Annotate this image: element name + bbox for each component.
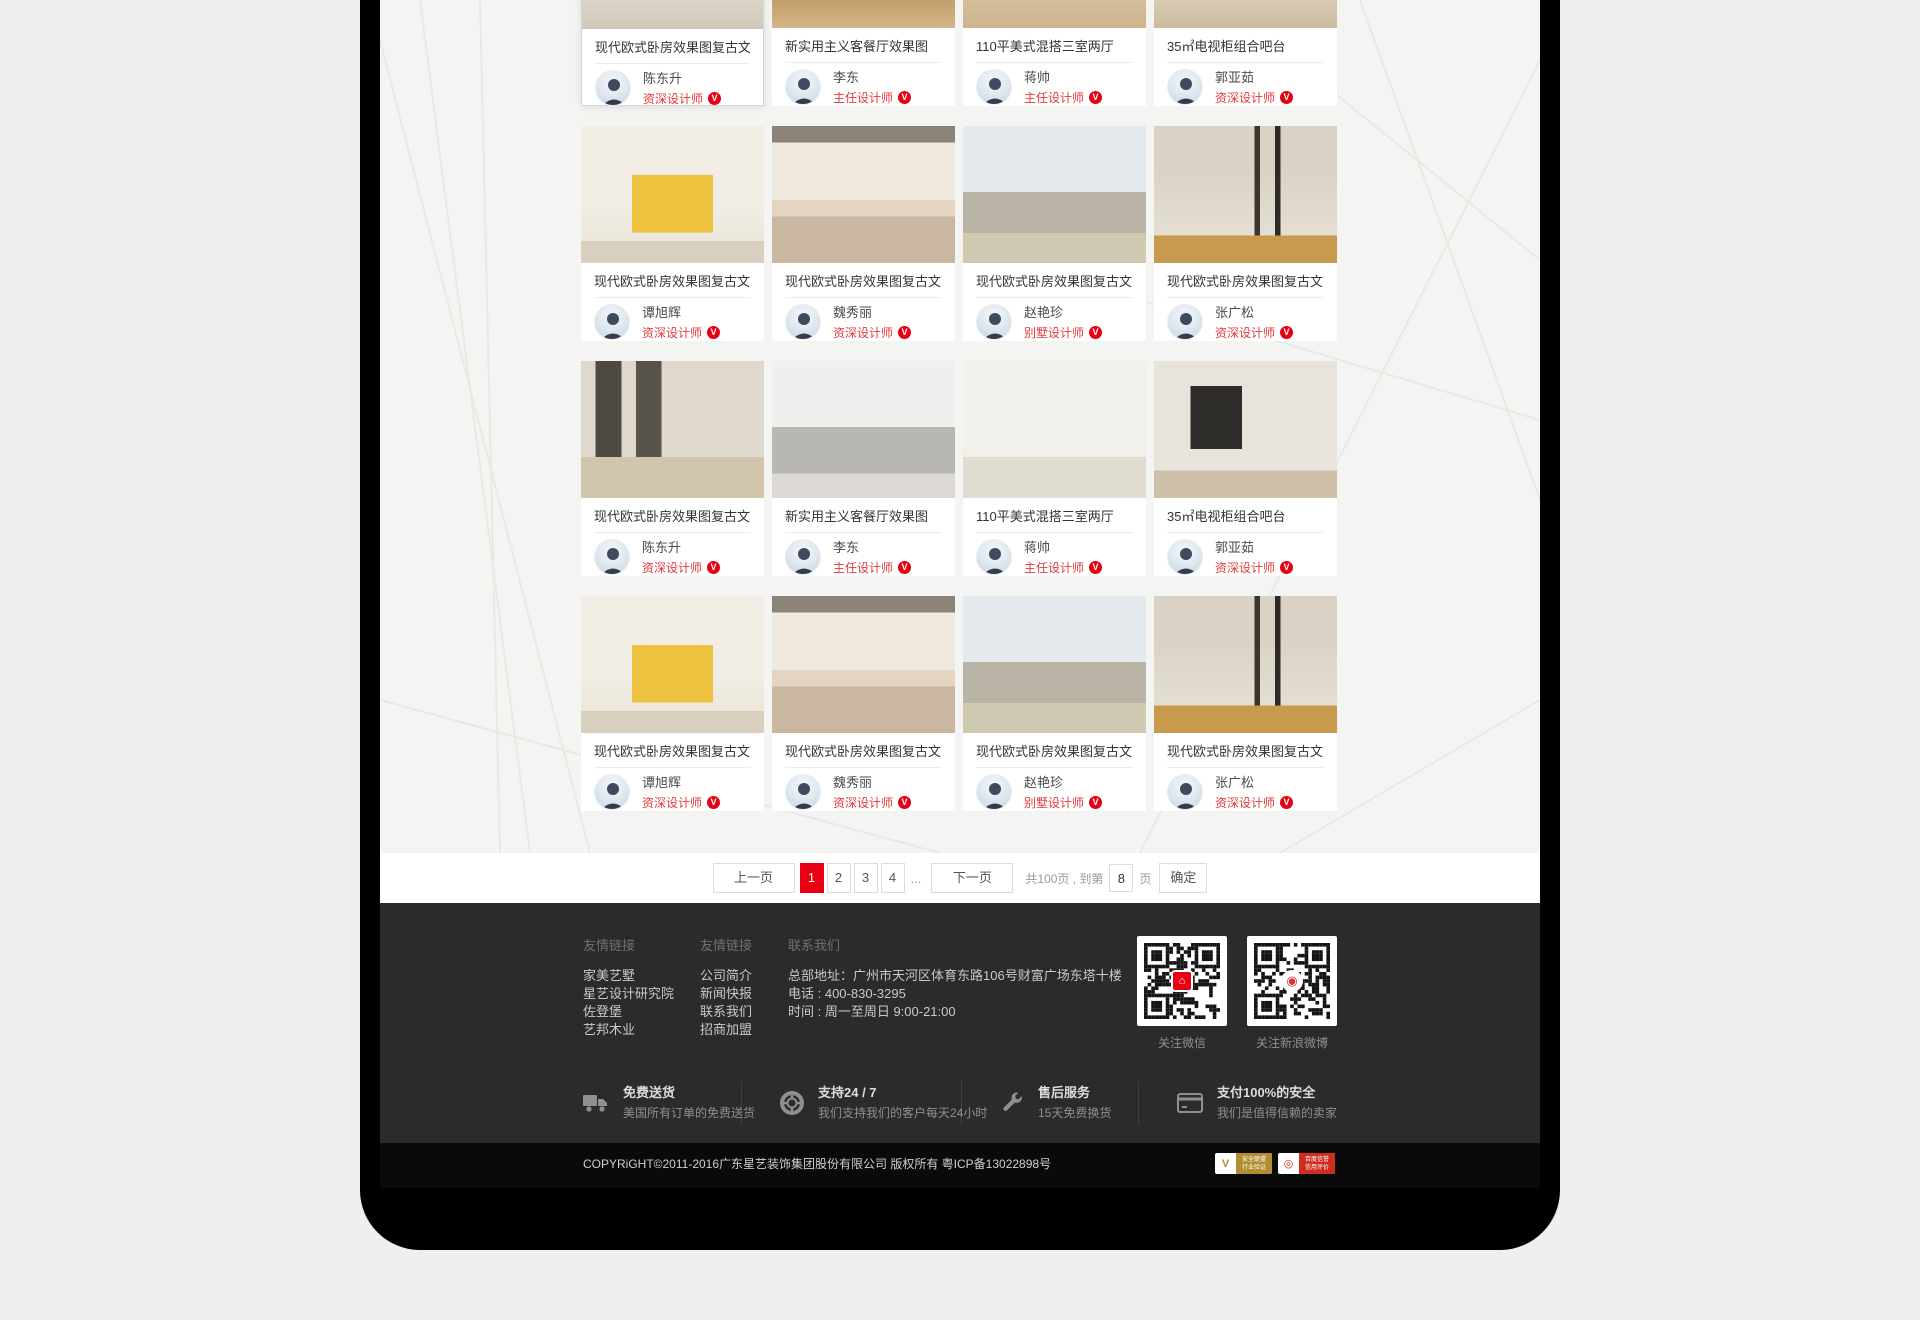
designer-name[interactable]: 赵艳珍	[1024, 775, 1102, 791]
truck-icon	[583, 1092, 609, 1114]
service-subtitle: 我们是值得信赖的卖家	[1217, 1106, 1337, 1121]
weibo-logo-icon: ◉	[1281, 970, 1303, 992]
footer-link[interactable]: 公司简介	[700, 967, 788, 985]
design-photo[interactable]	[772, 126, 955, 263]
designer-avatar[interactable]	[976, 304, 1012, 340]
design-card[interactable]: 现代欧式卧房效果图复古文艺 陈东升 资深设计师 V	[581, 0, 764, 106]
designer-row: 蒋帅 主任设计师 V	[976, 539, 1133, 575]
design-title[interactable]: 110平美式混搭三室两厅	[976, 502, 1133, 533]
footer-links-group-1: 友情链接 家美艺墅 星艺设计研究院 佐登堡 艺邦木业	[583, 935, 700, 1039]
designer-rank: 资深设计师	[642, 796, 702, 810]
designer-row: 赵艳珍 别墅设计师 V	[976, 774, 1133, 810]
designer-avatar[interactable]	[785, 304, 821, 340]
design-title[interactable]: 现代欧式卧房效果图复古文艺	[976, 267, 1133, 298]
service-subtitle: 美国所有订单的免费送货	[623, 1106, 755, 1121]
designer-avatar[interactable]	[1167, 304, 1203, 340]
page-content: 现代欧式卧房效果图复古文艺 陈东升 资深设计师 V 新实用主义客餐厅效果图	[380, 0, 1540, 1188]
verified-badge-icon: V	[898, 91, 911, 104]
verified-badge-icon: V	[1280, 561, 1293, 574]
design-title[interactable]: 35㎡电视柜组合吧台	[1167, 502, 1324, 533]
designer-row: 谭旭辉 资深设计师 V	[594, 774, 751, 810]
verified-badge-icon: V	[707, 326, 720, 339]
verified-badge-icon: V	[708, 92, 721, 105]
design-card[interactable]: 现代欧式卧房效果图复古文艺 谭旭辉 资深设计师 V	[581, 596, 764, 811]
designer-avatar[interactable]	[785, 774, 821, 810]
security-alliance-badge[interactable]: V 安全联盟 行业验证	[1215, 1153, 1272, 1174]
page-button-4[interactable]: 4	[881, 863, 905, 893]
checkmark-seal-icon: V	[1215, 1153, 1236, 1174]
service-title: 售后服务	[1038, 1085, 1111, 1101]
footer-group-heading: 友情链接	[583, 935, 700, 954]
credit-card-icon	[1177, 1093, 1203, 1113]
designer-rank: 资深设计师	[1215, 326, 1275, 340]
design-photo[interactable]	[963, 0, 1146, 28]
design-photo[interactable]	[1154, 0, 1337, 28]
design-title[interactable]: 现代欧式卧房效果图复古文艺	[1167, 737, 1324, 768]
copyright-bar: COPYRiGHT©2011-2016广东星艺装饰集团股份有限公司 版权所有 粤…	[380, 1143, 1540, 1188]
footer-links-group-2: 友情链接 公司简介 新闻快报 联系我们 招商加盟	[700, 935, 788, 1039]
design-photo[interactable]	[772, 361, 955, 498]
designer-name[interactable]: 赵艳珍	[1024, 305, 1102, 321]
design-photo[interactable]	[581, 596, 764, 733]
designer-avatar[interactable]	[1167, 539, 1203, 575]
designer-avatar[interactable]	[594, 774, 630, 810]
verified-badge-icon: V	[898, 326, 911, 339]
weibo-qr-code: ◉	[1247, 936, 1337, 1026]
design-card[interactable]: 新实用主义客餐厅效果图 李东 主任设计师 V	[772, 0, 955, 106]
designer-row: 郭亚茹 资深设计师 V	[1167, 539, 1324, 575]
design-card[interactable]: 现代欧式卧房效果图复古文艺 张广松 资深设计师 V	[1154, 126, 1337, 341]
next-page-button[interactable]: 下一页	[931, 863, 1013, 893]
verified-badge-icon: V	[1280, 91, 1293, 104]
designer-rank: 主任设计师	[833, 91, 893, 105]
design-photo[interactable]	[582, 0, 763, 29]
design-title[interactable]: 110平美式混搭三室两厅	[976, 32, 1133, 63]
designer-name[interactable]: 魏秀丽	[833, 775, 911, 791]
designer-name[interactable]: 谭旭辉	[642, 305, 720, 321]
service-free-shipping: 免费送货 美国所有订单的免费送货	[583, 1085, 741, 1121]
designer-avatar[interactable]	[976, 774, 1012, 810]
designer-row: 陈东升 资深设计师 V	[594, 539, 751, 575]
baidu-credit-badge[interactable]: ◎ 百度信誉 信用评价	[1278, 1153, 1335, 1174]
service-secure-payment: 支付100%的安全 我们是值得信赖的卖家	[1139, 1085, 1337, 1121]
designer-row: 郭亚茹 资深设计师 V	[1167, 69, 1324, 105]
designer-avatar[interactable]	[594, 539, 630, 575]
verified-badge-icon: V	[898, 561, 911, 574]
design-card[interactable]: 现代欧式卧房效果图复古文艺 谭旭辉 资深设计师 V	[581, 126, 764, 341]
design-card[interactable]: 35㎡电视柜组合吧台 郭亚茹 资深设计师 V	[1154, 361, 1337, 576]
verified-badge-icon: V	[1089, 796, 1102, 809]
service-after-sales: 售后服务 15天免费换货	[962, 1085, 1138, 1121]
qr-code-block: ⌂ 关注微信 ◉ 关注新浪微博	[1137, 936, 1337, 1051]
wechat-qr-code: ⌂	[1137, 936, 1227, 1026]
design-card[interactable]: 现代欧式卧房效果图复古文艺 张广松 资深设计师 V	[1154, 596, 1337, 811]
designer-row: 魏秀丽 资深设计师 V	[785, 774, 942, 810]
design-title[interactable]: 新实用主义客餐厅效果图	[785, 502, 942, 533]
wechat-logo-icon: ⌂	[1171, 970, 1193, 992]
design-title[interactable]: 现代欧式卧房效果图复古文艺	[594, 502, 751, 533]
designer-name[interactable]: 张广松	[1215, 305, 1293, 321]
page-button-3[interactable]: 3	[854, 863, 878, 893]
design-title[interactable]: 现代欧式卧房效果图复古文艺	[785, 267, 942, 298]
verified-badge-icon: V	[707, 561, 720, 574]
footer-link[interactable]: 家美艺墅	[583, 967, 700, 985]
design-title[interactable]: 现代欧式卧房效果图复古文艺	[785, 737, 942, 768]
designer-rank: 主任设计师	[1024, 91, 1084, 105]
designer-rank: 主任设计师	[1024, 561, 1084, 575]
service-features-row: 免费送货 美国所有订单的免费送货	[583, 1075, 1337, 1131]
design-card[interactable]: 110平美式混搭三室两厅 蒋帅 主任设计师 V	[963, 0, 1146, 106]
designer-row: 魏秀丽 资深设计师 V	[785, 304, 942, 340]
service-title: 支付100%的安全	[1217, 1085, 1337, 1101]
lifebuoy-icon	[780, 1091, 804, 1115]
design-photo[interactable]	[581, 361, 764, 498]
footer-link[interactable]: 招商加盟	[700, 1021, 788, 1039]
design-card[interactable]: 现代欧式卧房效果图复古文艺 赵艳珍 别墅设计师 V	[963, 126, 1146, 341]
designer-row: 陈东升 资深设计师 V	[595, 70, 750, 106]
design-title[interactable]: 现代欧式卧房效果图复古文艺	[594, 267, 751, 298]
design-title[interactable]: 现代欧式卧房效果图复古文艺	[976, 737, 1133, 768]
designer-row: 赵艳珍 别墅设计师 V	[976, 304, 1133, 340]
designer-name[interactable]: 李东	[833, 70, 911, 86]
design-photo[interactable]	[1154, 596, 1337, 733]
design-photo[interactable]	[1154, 361, 1337, 498]
designer-avatar[interactable]	[976, 69, 1012, 105]
design-photo[interactable]	[963, 126, 1146, 263]
designer-row: 蒋帅 主任设计师 V	[976, 69, 1133, 105]
designer-row: 谭旭辉 资深设计师 V	[594, 304, 751, 340]
designer-rank: 资深设计师	[642, 561, 702, 575]
verified-badge-icon: V	[1089, 91, 1102, 104]
design-photo[interactable]	[963, 361, 1146, 498]
designer-avatar[interactable]	[785, 69, 821, 105]
design-title[interactable]: 新实用主义客餐厅效果图	[785, 32, 942, 63]
jump-confirm-button[interactable]: 确定	[1159, 863, 1207, 893]
verified-badge-icon: V	[1280, 796, 1293, 809]
qr-label: 关注微信	[1137, 1034, 1227, 1051]
design-title[interactable]: 现代欧式卧房效果图复古文艺	[1167, 267, 1324, 298]
designer-name[interactable]: 郭亚茹	[1215, 540, 1293, 556]
design-card-grid: 现代欧式卧房效果图复古文艺 陈东升 资深设计师 V 新实用主义客餐厅效果图	[581, 0, 1339, 811]
designer-name[interactable]: 陈东升	[642, 540, 720, 556]
design-card[interactable]: 现代欧式卧房效果图复古文艺 魏秀丽 资深设计师 V	[772, 126, 955, 341]
design-title[interactable]: 35㎡电视柜组合吧台	[1167, 32, 1324, 63]
jump-page-input[interactable]	[1109, 864, 1133, 892]
service-subtitle: 15天免费换货	[1038, 1106, 1111, 1121]
designer-rank: 资深设计师	[833, 326, 893, 340]
designer-rank: 资深设计师	[833, 796, 893, 810]
badge-line: 安全联盟	[1242, 1156, 1266, 1164]
prev-page-button[interactable]: 上一页	[713, 863, 795, 893]
designer-rank: 别墅设计师	[1024, 796, 1084, 810]
pagination-bar: 上一页 1 2 3 4 ... 下一页 共100页 , 到第 页 确定	[380, 853, 1540, 903]
service-title: 免费送货	[623, 1085, 755, 1101]
designer-rank: 资深设计师	[1215, 561, 1275, 575]
designer-name[interactable]: 张广松	[1215, 775, 1293, 791]
page-button-2[interactable]: 2	[827, 863, 851, 893]
designer-avatar[interactable]	[976, 539, 1012, 575]
designer-row: 李东 主任设计师 V	[785, 539, 942, 575]
designer-rank: 资深设计师	[643, 92, 703, 106]
footer-link[interactable]: 艺邦木业	[583, 1021, 700, 1039]
designer-rank: 资深设计师	[642, 326, 702, 340]
designer-name[interactable]: 魏秀丽	[833, 305, 911, 321]
verified-badge-icon: V	[1089, 326, 1102, 339]
badge-line: 信用评价	[1305, 1164, 1329, 1172]
designer-row: 李东 主任设计师 V	[785, 69, 942, 105]
designer-row: 张广松 资深设计师 V	[1167, 774, 1324, 810]
design-card[interactable]: 35㎡电视柜组合吧台 郭亚茹 资深设计师 V	[1154, 0, 1337, 106]
design-card[interactable]: 现代欧式卧房效果图复古文艺 赵艳珍 别墅设计师 V	[963, 596, 1146, 811]
design-photo[interactable]	[963, 596, 1146, 733]
page-total-label: 共100页 , 到第	[1025, 870, 1103, 887]
footer-link[interactable]: 星艺设计研究院	[583, 985, 700, 1003]
verified-badge-icon: V	[898, 796, 911, 809]
design-card[interactable]: 110平美式混搭三室两厅 蒋帅 主任设计师 V	[963, 361, 1146, 576]
footer-group-heading: 友情链接	[700, 935, 788, 954]
designer-rank: 主任设计师	[833, 561, 893, 575]
page-unit-label: 页	[1139, 870, 1151, 887]
copyright-text: COPYRiGHT©2011-2016广东星艺装饰集团股份有限公司 版权所有 粤…	[583, 1143, 1051, 1185]
page-button-1[interactable]: 1	[800, 863, 824, 893]
designer-avatar[interactable]	[785, 539, 821, 575]
designer-name[interactable]: 谭旭辉	[642, 775, 720, 791]
designer-avatar[interactable]	[594, 304, 630, 340]
design-photo[interactable]	[772, 596, 955, 733]
design-card[interactable]: 现代欧式卧房效果图复古文艺 陈东升 资深设计师 V	[581, 361, 764, 576]
designer-name[interactable]: 蒋帅	[1024, 540, 1102, 556]
design-photo[interactable]	[581, 126, 764, 263]
service-support: 支持24 / 7 我们支持我们的客户每天24小时	[742, 1085, 961, 1121]
design-title[interactable]: 现代欧式卧房效果图复古文艺	[594, 737, 751, 768]
badge-line: 百度信誉	[1305, 1156, 1329, 1164]
screenshot-canvas: 现代欧式卧房效果图复古文艺 陈东升 资深设计师 V 新实用主义客餐厅效果图	[0, 0, 1920, 1320]
swirl-seal-icon: ◎	[1278, 1153, 1299, 1174]
designer-name[interactable]: 郭亚茹	[1215, 70, 1293, 86]
designer-name[interactable]: 蒋帅	[1024, 70, 1102, 86]
designer-avatar[interactable]	[1167, 774, 1203, 810]
verified-badge-icon: V	[707, 796, 720, 809]
designer-rank: 别墅设计师	[1024, 326, 1084, 340]
badge-line: 行业验证	[1242, 1164, 1266, 1172]
site-footer: 友情链接 家美艺墅 星艺设计研究院 佐登堡 艺邦木业 友情链接 公司简介 新闻快…	[380, 903, 1540, 1143]
design-title[interactable]: 现代欧式卧房效果图复古文艺	[595, 33, 750, 64]
footer-link[interactable]: 联系我们	[700, 1003, 788, 1021]
designer-name[interactable]: 陈东升	[643, 71, 721, 87]
design-photo[interactable]	[772, 0, 955, 28]
designer-avatar[interactable]	[595, 70, 631, 106]
verified-badge-icon: V	[1280, 326, 1293, 339]
footer-link[interactable]: 佐登堡	[583, 1003, 700, 1021]
designer-name[interactable]: 李东	[833, 540, 911, 556]
qr-label: 关注新浪微博	[1247, 1034, 1337, 1051]
design-card[interactable]: 新实用主义客餐厅效果图 李东 主任设计师 V	[772, 361, 955, 576]
design-photo[interactable]	[1154, 126, 1337, 263]
designer-rank: 资深设计师	[1215, 796, 1275, 810]
designer-rank: 资深设计师	[1215, 91, 1275, 105]
designer-row: 张广松 资深设计师 V	[1167, 304, 1324, 340]
designer-avatar[interactable]	[1167, 69, 1203, 105]
footer-link[interactable]: 新闻快报	[700, 985, 788, 1003]
page-ellipsis: ...	[911, 871, 922, 886]
design-card[interactable]: 现代欧式卧房效果图复古文艺 魏秀丽 资深设计师 V	[772, 596, 955, 811]
verified-badge-icon: V	[1089, 561, 1102, 574]
wrench-icon	[1000, 1091, 1024, 1115]
